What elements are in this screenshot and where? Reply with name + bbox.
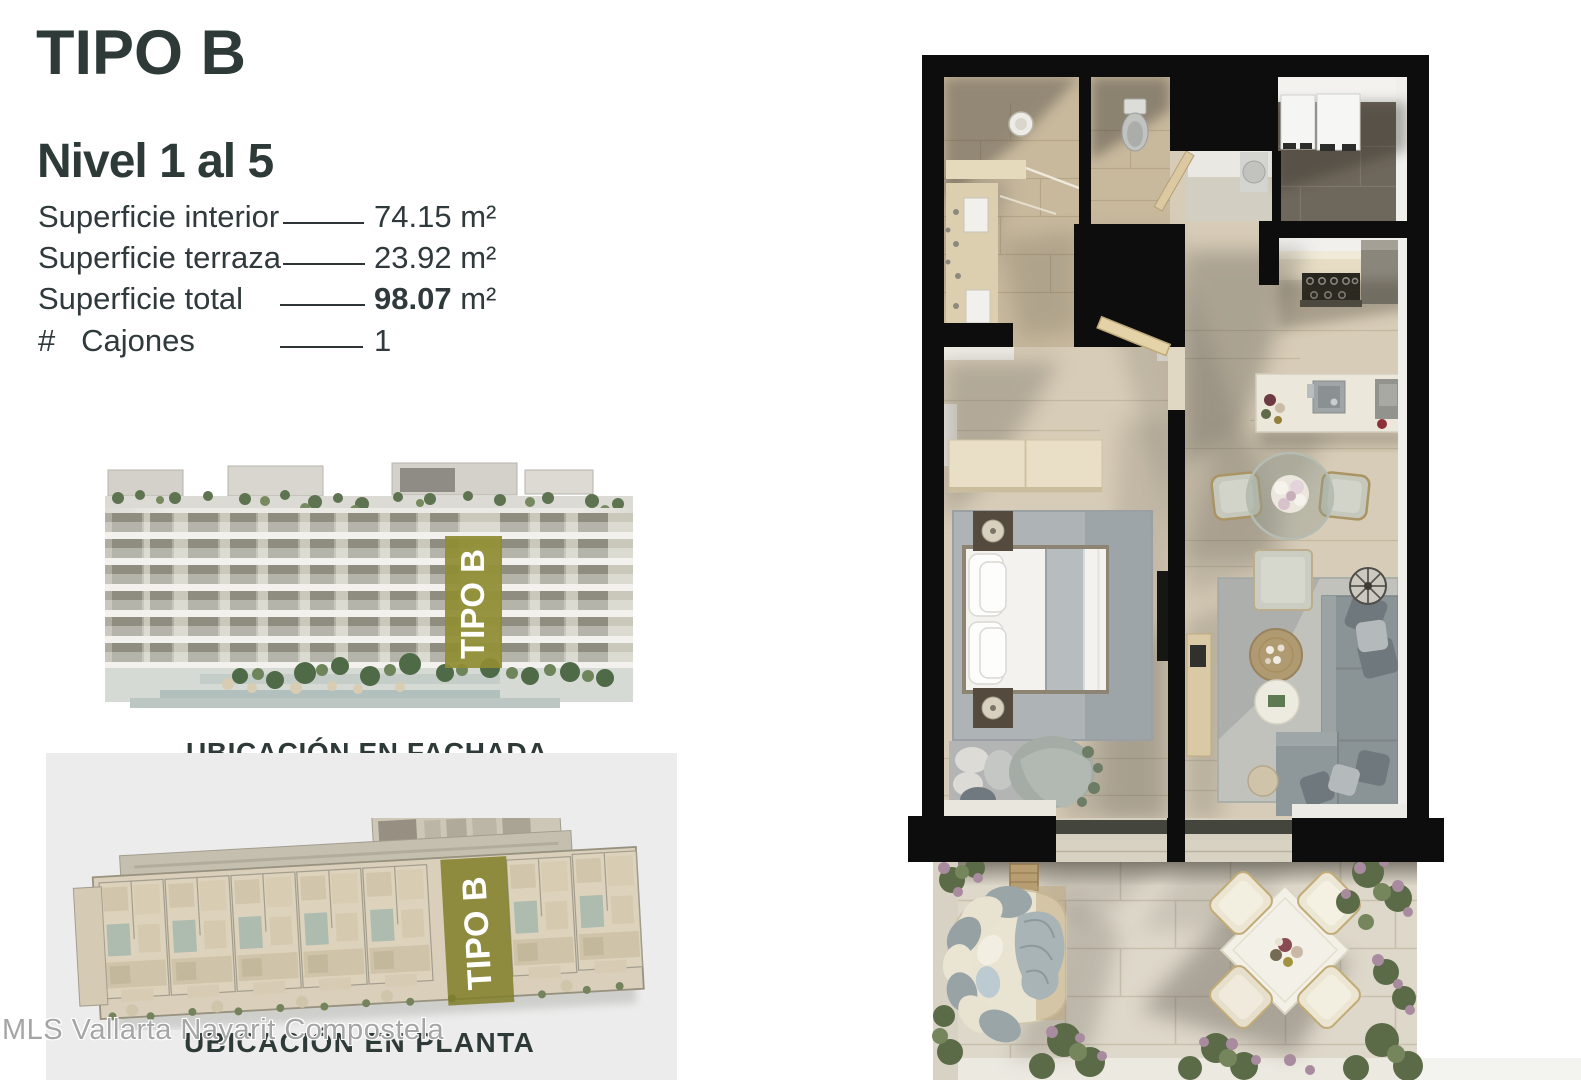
svg-text:TIPO B: TIPO B [454,549,491,659]
svg-text:TIPO B: TIPO B [455,876,499,991]
